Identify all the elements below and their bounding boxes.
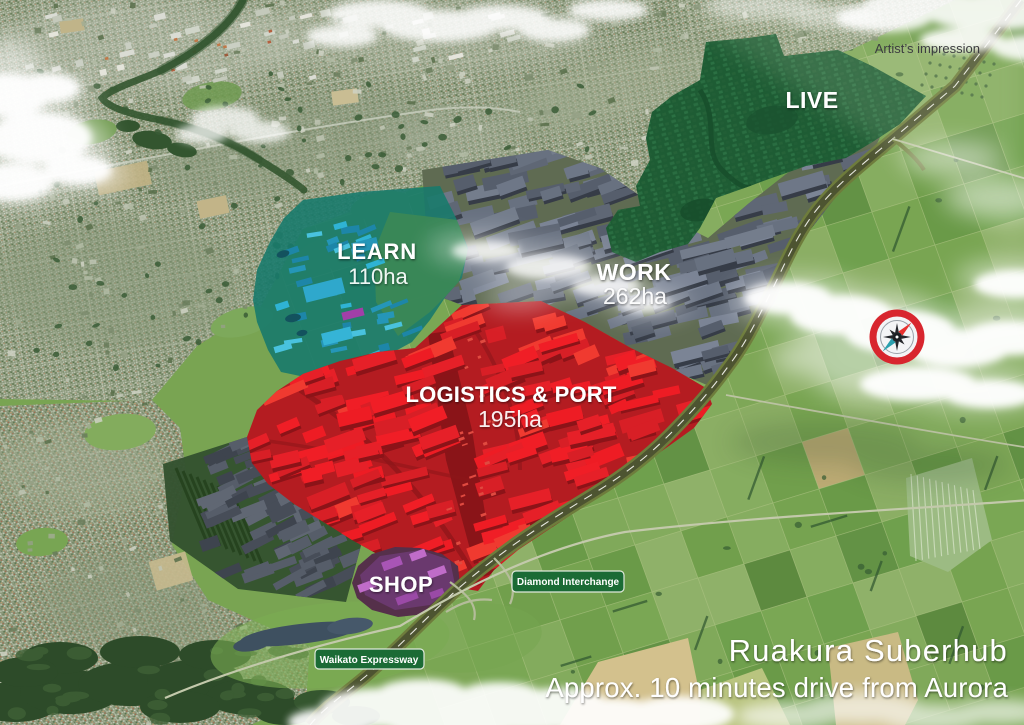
svg-text:Diamond Interchange: Diamond Interchange	[517, 577, 620, 588]
svg-text:Approx. 10 minutes drive from: Approx. 10 minutes drive from Aurora	[545, 672, 1008, 703]
svg-text:262ha: 262ha	[603, 283, 667, 309]
svg-text:195ha: 195ha	[478, 406, 542, 432]
svg-text:Waikato Expressway: Waikato Expressway	[320, 655, 419, 666]
svg-text:SHOP: SHOP	[369, 572, 433, 597]
svg-text:110ha: 110ha	[348, 264, 408, 289]
svg-text:WORK: WORK	[597, 259, 672, 285]
svg-text:LEARN: LEARN	[337, 239, 417, 264]
svg-text:Artist’s impression: Artist’s impression	[875, 41, 980, 56]
svg-text:Ruakura Suberhub: Ruakura Suberhub	[729, 633, 1008, 668]
svg-text:LIVE: LIVE	[785, 87, 838, 113]
svg-text:LOGISTICS & PORT: LOGISTICS & PORT	[406, 382, 617, 407]
